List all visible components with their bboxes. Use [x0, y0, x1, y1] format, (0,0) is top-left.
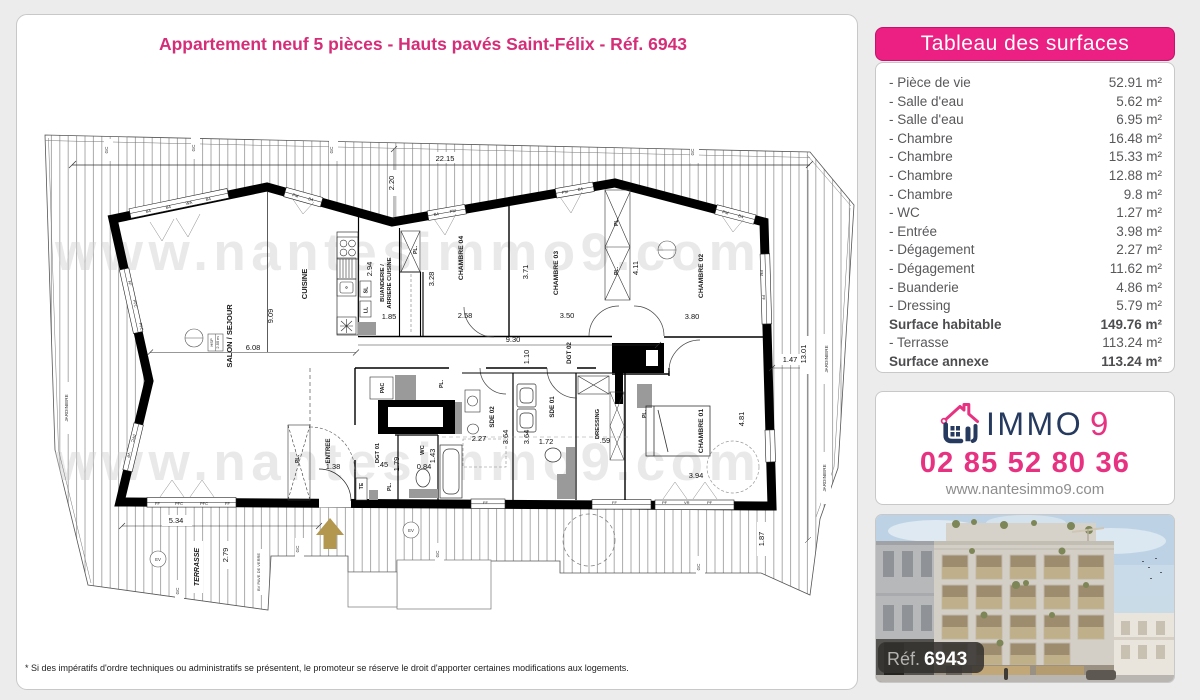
svg-text:TERRASSE: TERRASSE [194, 548, 201, 586]
svg-text:2.94: 2.94 [365, 262, 374, 277]
svg-text:FF: FF [483, 500, 488, 505]
svg-text:JARDINIERE: JARDINIERE [64, 394, 69, 421]
svg-text:9: 9 [1090, 405, 1108, 442]
svg-text:PFC: PFC [175, 501, 183, 506]
svg-text:PL.: PL. [439, 379, 445, 388]
svg-text:GC: GC [175, 587, 180, 595]
svg-text:1.72: 1.72 [539, 437, 554, 446]
svg-text:IMMO: IMMO [986, 406, 1083, 442]
svg-text:3.71: 3.71 [521, 265, 530, 280]
svg-text:PL.: PL. [295, 454, 301, 463]
svg-text:1.47: 1.47 [783, 355, 798, 364]
svg-text:3.64: 3.64 [522, 430, 531, 445]
svg-text:CHAMBRE 03: CHAMBRE 03 [553, 251, 560, 295]
svg-text:BV PAVE DE VERRE: BV PAVE DE VERRE [256, 553, 261, 591]
svg-text:.59: .59 [600, 436, 610, 445]
svg-text:22.15: 22.15 [436, 154, 455, 163]
svg-text:PL.: PL. [387, 482, 393, 491]
svg-text:1.38: 1.38 [326, 462, 341, 471]
svg-text:2.27: 2.27 [472, 434, 487, 443]
svg-text:PFC: PFC [200, 501, 208, 506]
svg-text:1.10: 1.10 [522, 350, 531, 365]
svg-text:3.80: 3.80 [685, 312, 700, 321]
svg-text:3.94: 3.94 [689, 471, 704, 480]
svg-text:SALON / SEJOUR: SALON / SEJOUR [225, 304, 234, 368]
svg-text:4.81: 4.81 [737, 412, 746, 427]
svg-text:GC: GC [435, 550, 440, 558]
svg-text:PL.: PL. [413, 245, 419, 254]
svg-text:CUISINE: CUISINE [300, 269, 309, 299]
svg-text:9.09: 9.09 [266, 309, 275, 324]
svg-text:13.01: 13.01 [799, 345, 808, 364]
svg-text:PF: PF [707, 500, 713, 505]
svg-text:WC: WC [420, 444, 426, 454]
svg-text:EV: EV [155, 557, 161, 562]
svg-text:2.79: 2.79 [221, 548, 230, 563]
svg-text:LL: LL [364, 306, 370, 313]
svg-text:GC: GC [690, 148, 695, 156]
svg-text:2.20: 2.20 [387, 176, 396, 191]
svg-text:TE: TE [359, 482, 365, 489]
svg-text:PM: PM [759, 270, 764, 276]
svg-text:Réf.: Réf. [887, 649, 920, 669]
svg-text:PF: PF [662, 500, 668, 505]
svg-text:FF: FF [155, 501, 160, 506]
svg-text:2.58: 2.58 [458, 311, 473, 320]
svg-text:6.08: 6.08 [246, 343, 261, 352]
svg-text:SDE 02: SDE 02 [489, 406, 496, 428]
svg-text:4.11: 4.11 [631, 261, 640, 275]
svg-text:CHAMBRE 04: CHAMBRE 04 [458, 236, 465, 280]
svg-text:3.50: 3.50 [560, 311, 575, 320]
svg-text:SDE 01: SDE 01 [549, 396, 556, 418]
svg-text:SL: SL [364, 286, 370, 293]
svg-text:HSP: HSP [209, 338, 214, 347]
svg-text:5.34: 5.34 [169, 516, 184, 525]
svg-text:1.43: 1.43 [428, 449, 437, 464]
svg-text:DGT 02: DGT 02 [566, 342, 573, 364]
svg-text:PL.: PL. [614, 217, 620, 226]
svg-text:FF: FF [612, 500, 617, 505]
svg-text:JARDINIERE: JARDINIERE [824, 345, 829, 372]
svg-text:CHAMBRE 01: CHAMBRE 01 [698, 409, 705, 453]
svg-text:GC: GC [191, 144, 196, 152]
svg-text:6943: 6943 [924, 648, 968, 670]
svg-text:GC: GC [295, 545, 300, 553]
svg-text:1.87: 1.87 [757, 532, 766, 547]
svg-text:3.64: 3.64 [501, 430, 510, 445]
svg-text:www.nantesimmo9.com: www.nantesimmo9.com [54, 433, 761, 492]
svg-text:ARRIERE CUISINE: ARRIERE CUISINE [387, 257, 393, 308]
svg-text:JARDINIERE: JARDINIERE [822, 464, 827, 491]
svg-text:DRESSING: DRESSING [595, 408, 601, 439]
svg-text:1.85: 1.85 [382, 312, 397, 321]
svg-text:CHAMBRE 02: CHAMBRE 02 [698, 254, 705, 298]
svg-text:GC: GC [329, 146, 334, 154]
svg-text:1.79: 1.79 [392, 457, 401, 472]
svg-text:2.55 m: 2.55 m [215, 336, 220, 349]
svg-text:BUANDERIE /: BUANDERIE / [380, 264, 386, 302]
svg-text:PAC: PAC [380, 382, 386, 393]
svg-text:GC: GC [696, 563, 701, 571]
svg-text:ENTREE: ENTREE [325, 438, 332, 463]
svg-text:EV: EV [408, 528, 414, 533]
svg-text:3.28: 3.28 [427, 272, 436, 287]
svg-text:PL.: PL. [642, 409, 648, 418]
svg-text:PL.: PL. [614, 266, 620, 275]
svg-text:VR: VR [684, 500, 690, 505]
svg-text:PF: PF [761, 295, 766, 301]
svg-text:www.nantesimmo9.com: www.nantesimmo9.com [54, 223, 761, 282]
svg-text:9.30: 9.30 [506, 335, 521, 344]
svg-text:GC: GC [104, 146, 109, 154]
svg-text:.45: .45 [378, 460, 388, 469]
svg-text:FF: FF [225, 501, 230, 506]
